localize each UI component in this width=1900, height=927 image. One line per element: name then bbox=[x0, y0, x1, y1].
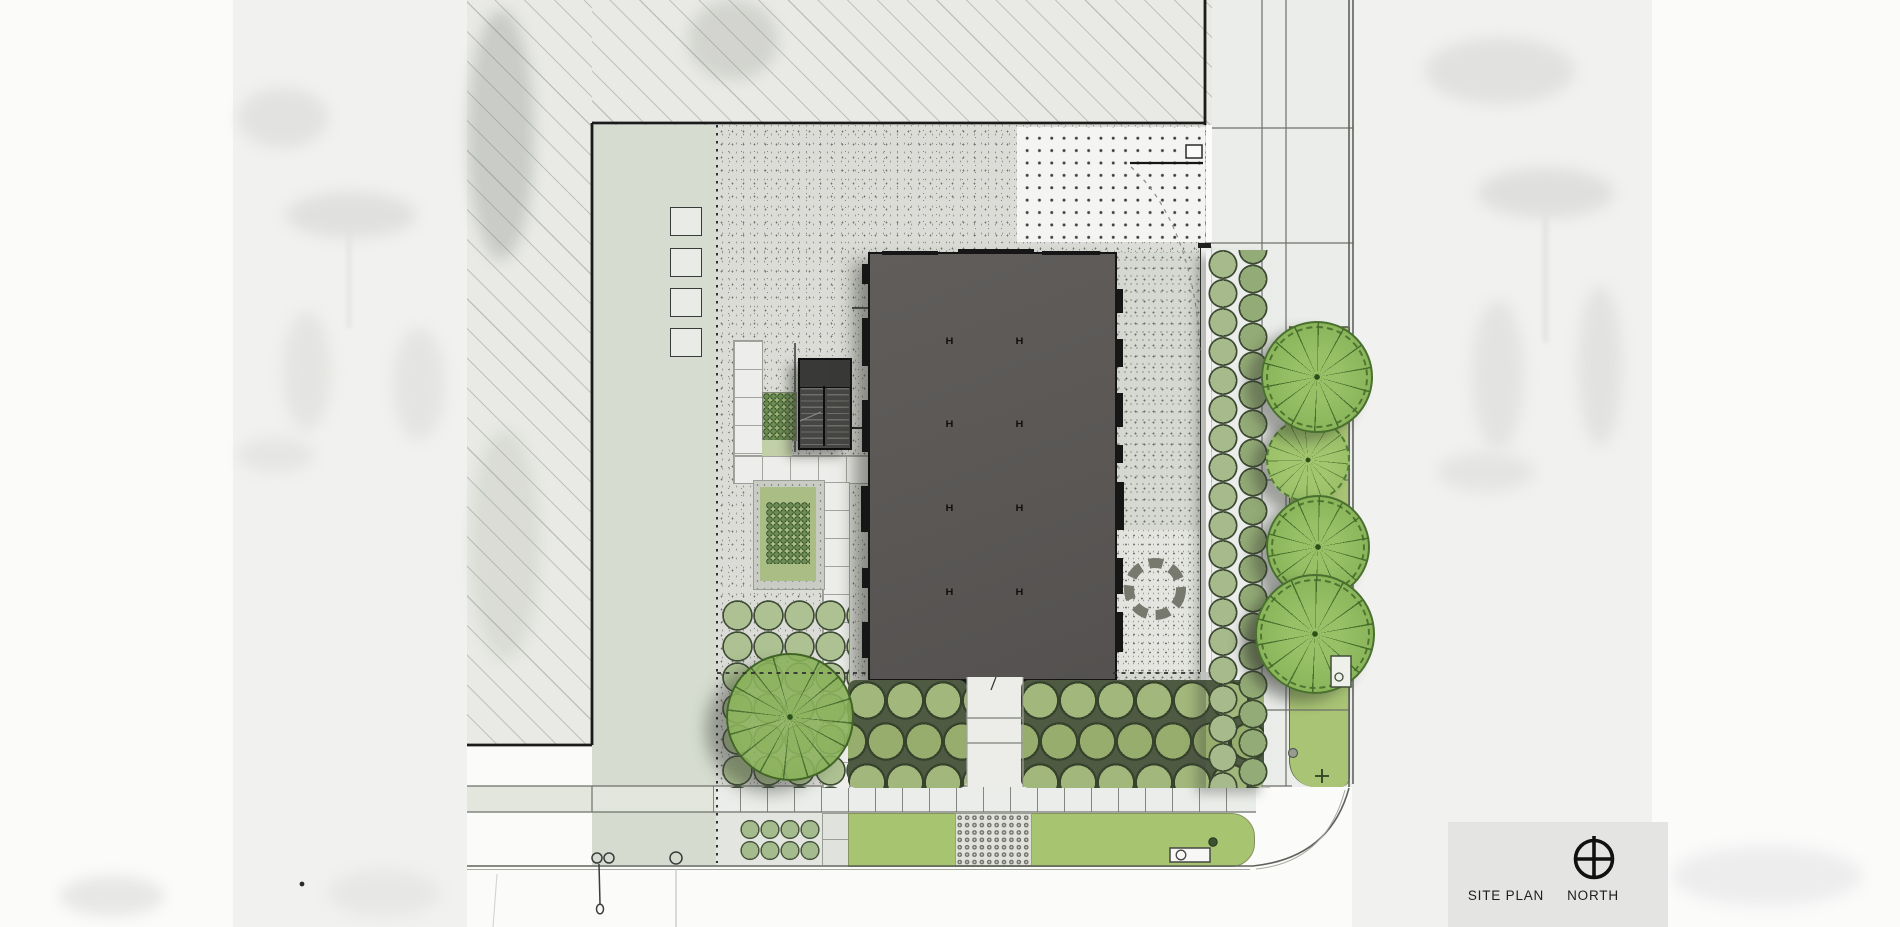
tactile-paver-panel bbox=[955, 813, 1032, 866]
lawn-paver-square bbox=[670, 288, 702, 317]
stair-flight-right bbox=[827, 388, 849, 448]
steel-column-marker: H bbox=[945, 504, 953, 513]
underlay-blob bbox=[1425, 38, 1575, 104]
steel-column-marker: H bbox=[945, 588, 953, 597]
lawn-paver-square bbox=[670, 248, 702, 277]
street-tree bbox=[1261, 321, 1373, 433]
stair-annex bbox=[798, 358, 852, 450]
underlay-blob bbox=[238, 88, 328, 148]
underlay-blob bbox=[283, 312, 331, 430]
steel-column-marker: H bbox=[1015, 420, 1023, 429]
street-tree bbox=[1255, 574, 1375, 694]
site-plan-canvas: H H H H H H H H bbox=[0, 0, 1900, 927]
north-label: NORTH bbox=[1567, 888, 1619, 903]
steel-column-marker: H bbox=[1015, 337, 1023, 346]
lawn-paver-square bbox=[670, 207, 702, 236]
parkway-lawn-west bbox=[592, 812, 716, 865]
proposed-building-footprint: H H H H H H H H bbox=[868, 252, 1117, 681]
dotted-paver-plaza bbox=[1017, 127, 1205, 242]
underlay-blob bbox=[1672, 846, 1862, 906]
parkway-shrub-grid bbox=[740, 819, 820, 862]
north-arrow-icon bbox=[1570, 832, 1618, 886]
hatch-shadow-blob bbox=[688, 0, 778, 80]
planter-small bbox=[762, 392, 797, 441]
planter-small-lawn bbox=[762, 440, 792, 456]
underlay-blob bbox=[60, 876, 164, 916]
steel-column-marker: H bbox=[945, 337, 953, 346]
underlay-blob bbox=[328, 870, 440, 916]
plaza-gravel-east bbox=[1113, 252, 1201, 534]
walk-connector-pavers bbox=[822, 813, 850, 865]
stair-divider bbox=[823, 386, 825, 446]
underlay-blob bbox=[1478, 168, 1614, 218]
parkway-strip-south bbox=[848, 813, 1255, 867]
entry-walk bbox=[967, 677, 1023, 787]
hatch-shadow-blob bbox=[468, 10, 534, 260]
underlay-blob bbox=[393, 328, 445, 440]
stair-flight-left bbox=[801, 388, 823, 448]
sidewalk-joints bbox=[713, 786, 1253, 812]
underlay-blob bbox=[238, 438, 314, 472]
annex-roof bbox=[800, 360, 850, 388]
planter-large-dots bbox=[766, 502, 810, 564]
seat-ring-plaza bbox=[1113, 530, 1201, 673]
underlay-blob bbox=[1472, 300, 1524, 450]
underlay-blob bbox=[286, 192, 416, 238]
hedge-row-east bbox=[1206, 250, 1270, 788]
lawn-tree bbox=[726, 653, 854, 781]
underlay-trunk bbox=[1543, 214, 1548, 342]
shrub-mass-south-left bbox=[848, 680, 967, 788]
title-block: SITE PLAN NORTH bbox=[1448, 822, 1668, 927]
steel-column-marker: H bbox=[945, 420, 953, 429]
hatch-shadow-blob bbox=[470, 430, 540, 660]
sidewalk-south-west bbox=[467, 786, 716, 812]
site-plan-label: SITE PLAN bbox=[1468, 888, 1544, 903]
underlay-blob bbox=[1438, 452, 1534, 492]
steel-column-marker: H bbox=[1015, 588, 1023, 597]
underlay-blob bbox=[1578, 286, 1622, 446]
steel-column-marker: H bbox=[1015, 504, 1023, 513]
lawn-paver-square bbox=[670, 328, 702, 357]
underlay-trunk bbox=[347, 232, 351, 328]
